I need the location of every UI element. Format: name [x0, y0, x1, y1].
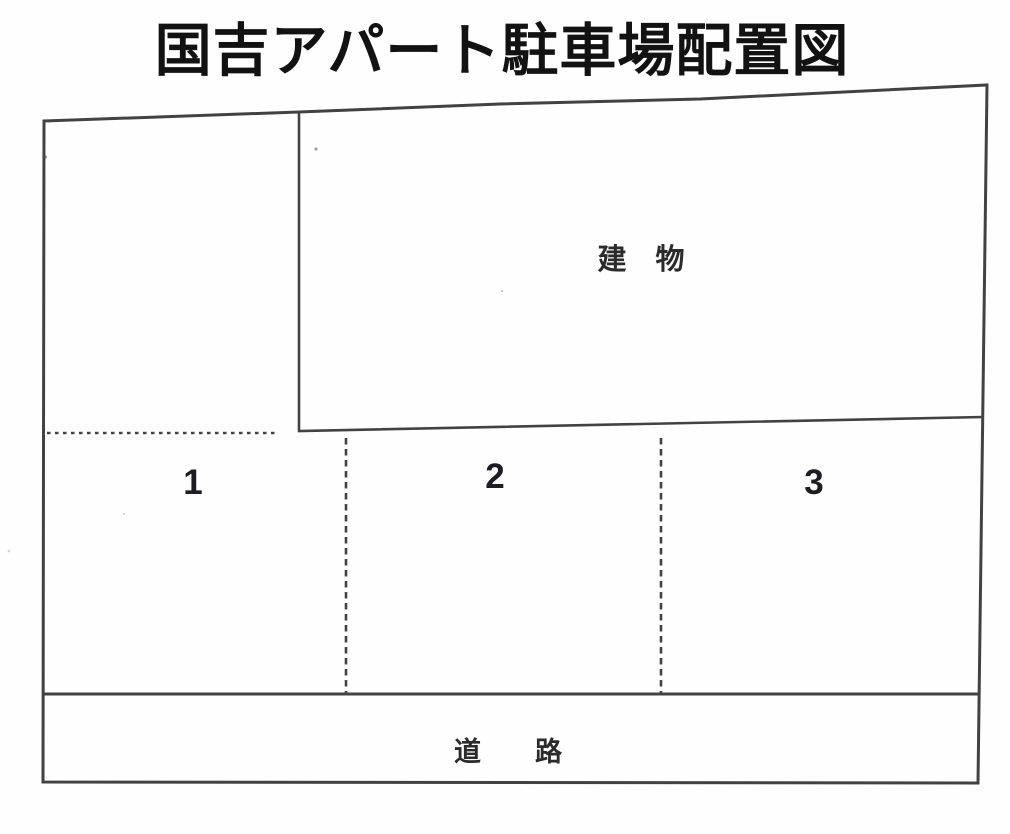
space3-number-label: 3 — [804, 463, 823, 502]
scan-speck — [123, 513, 125, 515]
road-label: 道 路 — [454, 736, 563, 767]
space2-number-label: 2 — [485, 457, 504, 496]
parking-layout-diagram: 国吉アパート駐車場配置図 建 物 1 2 3 道 路 — [0, 0, 1010, 834]
scan-speck — [43, 155, 47, 159]
space1-number-label: 1 — [183, 463, 202, 502]
scan-speck — [501, 290, 503, 292]
page-background — [0, 0, 1010, 834]
scan-speck — [8, 550, 11, 553]
building-label: 建 物 — [597, 243, 684, 276]
page-title: 国吉アパート駐車場配置図 — [155, 19, 850, 83]
scan-speck — [314, 147, 317, 150]
parking-layout-page: 国吉アパート駐車場配置図 建 物 1 2 3 道 路 — [0, 0, 1010, 834]
